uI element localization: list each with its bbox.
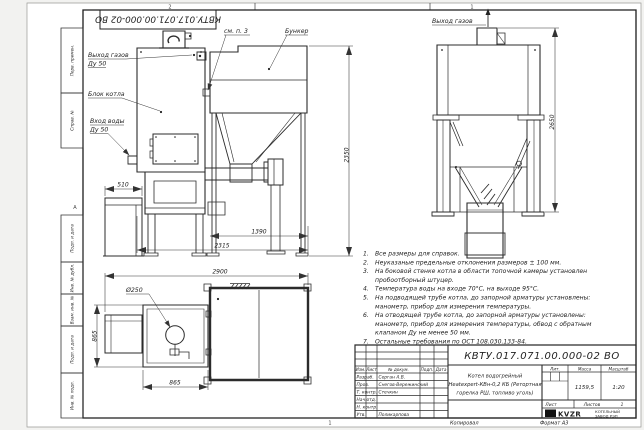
drawing-sheet: 2 1 А Перв. примен. Справ. № Подп. и дат…: [0, 0, 644, 430]
product-name-line3: горелка РШ, топливо уголь): [456, 391, 533, 397]
mass-value: 1159,5: [575, 385, 595, 391]
company-name-line2: ЗАВОД РЭП: [595, 413, 618, 418]
sheet-label: Лист: [544, 402, 557, 408]
margin-label-inv-podl: Инв. № подл.: [70, 381, 75, 410]
dim-2315: 2315: [214, 243, 229, 250]
label-gas-out-rear: Выход газов: [432, 18, 473, 25]
label-see-note: см. п. 3: [224, 28, 248, 35]
dim-2650: 2650: [549, 114, 556, 129]
label-bunker: Бункер: [285, 28, 308, 35]
dim-865-depth: 865: [92, 330, 99, 342]
row-razrab: Разраб.: [357, 375, 374, 381]
name-razrab: Серган А.В.: [379, 375, 406, 381]
dim-2350: 2350: [344, 147, 351, 162]
note-1-num: 1.: [363, 251, 369, 258]
row-nachotd: Нач.отд.: [357, 397, 377, 403]
header-lit: Лит.: [549, 367, 560, 372]
note-6-num: 6.: [363, 312, 369, 319]
scale-value: 1:20: [612, 385, 625, 391]
note-5-line1: На подводящей трубе котла, до запорной а…: [375, 294, 590, 302]
footer-format: Формат А3: [540, 421, 568, 427]
product-name-line2: Heatexpert-КВн-0,2 КБ (Ретортная: [449, 382, 542, 388]
margin-label-inv-dubl: Инв. № дубл.: [70, 264, 75, 293]
margin-label-podp-data-2: Подп. и дата: [70, 335, 75, 364]
note-6-line3: клапаном Ду не менее 50 мм.: [375, 330, 471, 337]
margin-label-vzam-inv: Взам. инв. №: [70, 295, 75, 324]
label-gas-out: Выход газов: [88, 52, 129, 59]
label-boiler-block: Блок котла: [88, 91, 125, 98]
col-data: Дата: [435, 367, 447, 372]
note-2-num: 2.: [363, 259, 369, 266]
margin-label-perv-primen: Перв. примен.: [70, 45, 75, 76]
margin-label-sprav-no: Справ. №: [70, 110, 75, 131]
label-dia-250: Ø250: [125, 286, 143, 294]
sheets-value: 1: [621, 402, 624, 408]
dim-865-width: 865: [169, 380, 181, 387]
margin-label-podp-data-1: Подп. и дата: [70, 224, 75, 253]
note-6-line1: На отводящей трубе котла, до запорной ар…: [375, 311, 586, 319]
sheet-frame: [27, 3, 641, 427]
label-water-in-dn: Ду 50: [89, 127, 108, 134]
zone-top-right: 1: [470, 4, 473, 10]
note-3-line1: На боковой стенке котла в области топочн…: [375, 267, 587, 275]
note-6-line2: манометр, прибор для измерения температу…: [375, 320, 592, 328]
note-3-line2: пробоотборный штуцер.: [375, 276, 454, 284]
note-4: Температура воды на входе 70°С, на выход…: [375, 285, 539, 293]
label-water-in: Вход воды: [90, 118, 125, 125]
col-list: Лист: [365, 367, 377, 372]
dim-1390: 1390: [251, 229, 266, 236]
header-scale: Масштаб: [609, 367, 629, 372]
logo-mark-icon: [545, 410, 556, 418]
note-2: Неуказаные предельные отклонения размеро…: [375, 259, 561, 266]
corner-code: КВТУ.017.071.00.000-02 ВО: [95, 14, 221, 24]
name-utv: Поликарпова: [379, 412, 410, 418]
row-tkontr: Т. контр.: [357, 390, 377, 396]
dim-2900: 2900: [212, 269, 227, 276]
label-gas-out-dn: Ду 50: [87, 61, 106, 68]
sheets-label: Листов: [583, 402, 601, 408]
col-doc: № докум.: [387, 367, 409, 372]
zone-left: А: [73, 205, 77, 211]
logo-text: KVZR: [558, 411, 581, 419]
note-4-num: 4.: [363, 286, 369, 293]
note-5-line2: манометр, прибор для измерения температу…: [375, 302, 531, 310]
col-podp: Подп.: [421, 367, 434, 372]
dim-510: 510: [117, 182, 129, 189]
col-izm: Изм.: [356, 367, 366, 372]
product-name-line1: Котел водогрейный: [468, 374, 523, 380]
zone-bottom: 1: [328, 421, 331, 427]
note-3-num: 3.: [363, 268, 369, 275]
note-7: Остальные требования по ОСТ 108.030.133-…: [375, 338, 527, 346]
footer-copied: Копировал: [450, 421, 479, 427]
note-5-num: 5.: [363, 295, 369, 302]
row-prov: Пров.: [357, 382, 370, 388]
header-mass: Масса: [578, 367, 592, 372]
name-tkontr: Стечкин: [379, 390, 398, 396]
title-drawing-code: КВТУ.017.071.00.000-02 ВО: [464, 351, 620, 362]
note-1: Все размеры для справок.: [375, 251, 460, 258]
name-prov: Снегов-Вережинский: [379, 382, 429, 388]
row-utv: Утв.: [357, 412, 366, 418]
row-nkontr: Н. контр.: [357, 405, 378, 411]
boiler-assembly-drawing: 2 1 А Перв. примен. Справ. № Подп. и дат…: [0, 0, 644, 430]
